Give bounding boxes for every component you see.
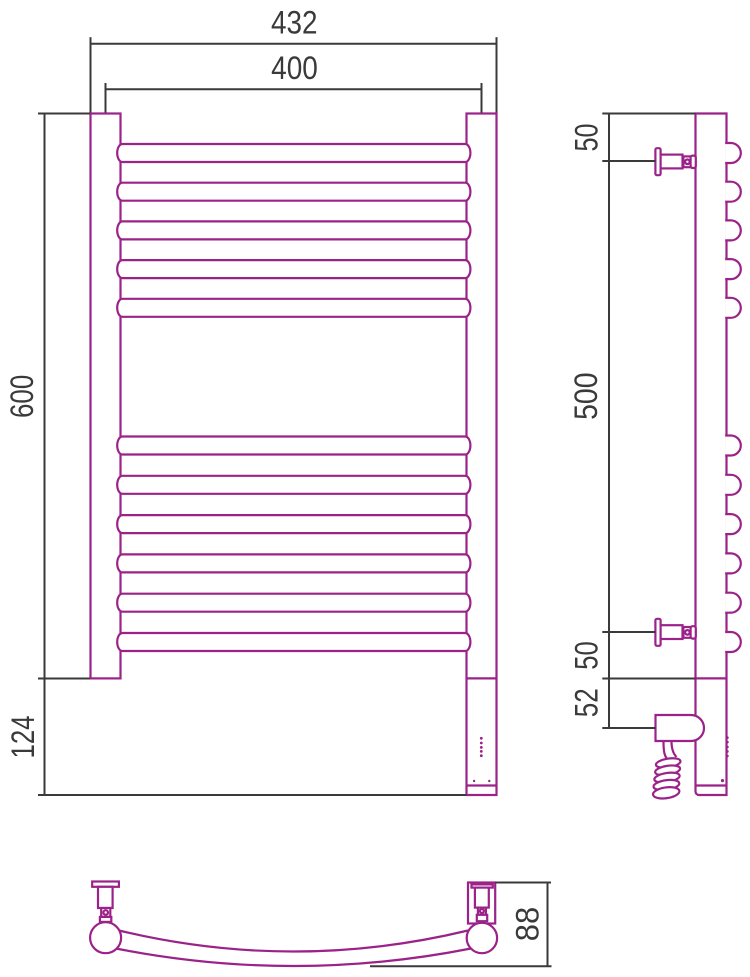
svg-text:432: 432	[271, 5, 318, 41]
svg-text:50: 50	[568, 641, 604, 670]
svg-text:600: 600	[4, 375, 40, 418]
svg-text:88: 88	[510, 907, 546, 941]
svg-text:400: 400	[271, 50, 318, 86]
svg-text:50: 50	[568, 124, 604, 152]
svg-text:52: 52	[568, 688, 604, 717]
svg-text:500: 500	[568, 373, 604, 420]
svg-text:124: 124	[5, 716, 41, 759]
